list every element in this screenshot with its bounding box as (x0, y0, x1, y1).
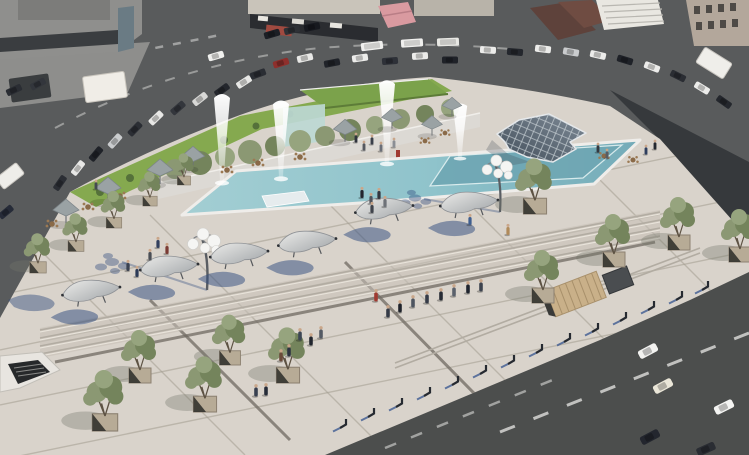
render-canvas (0, 0, 749, 455)
building-top-left (0, 0, 150, 108)
car (507, 48, 524, 56)
car (480, 46, 496, 54)
car (412, 52, 428, 60)
car (382, 57, 399, 65)
minibus (401, 38, 424, 48)
car (442, 57, 458, 64)
aerial-plaza-render (0, 0, 749, 455)
minibus (437, 38, 459, 47)
